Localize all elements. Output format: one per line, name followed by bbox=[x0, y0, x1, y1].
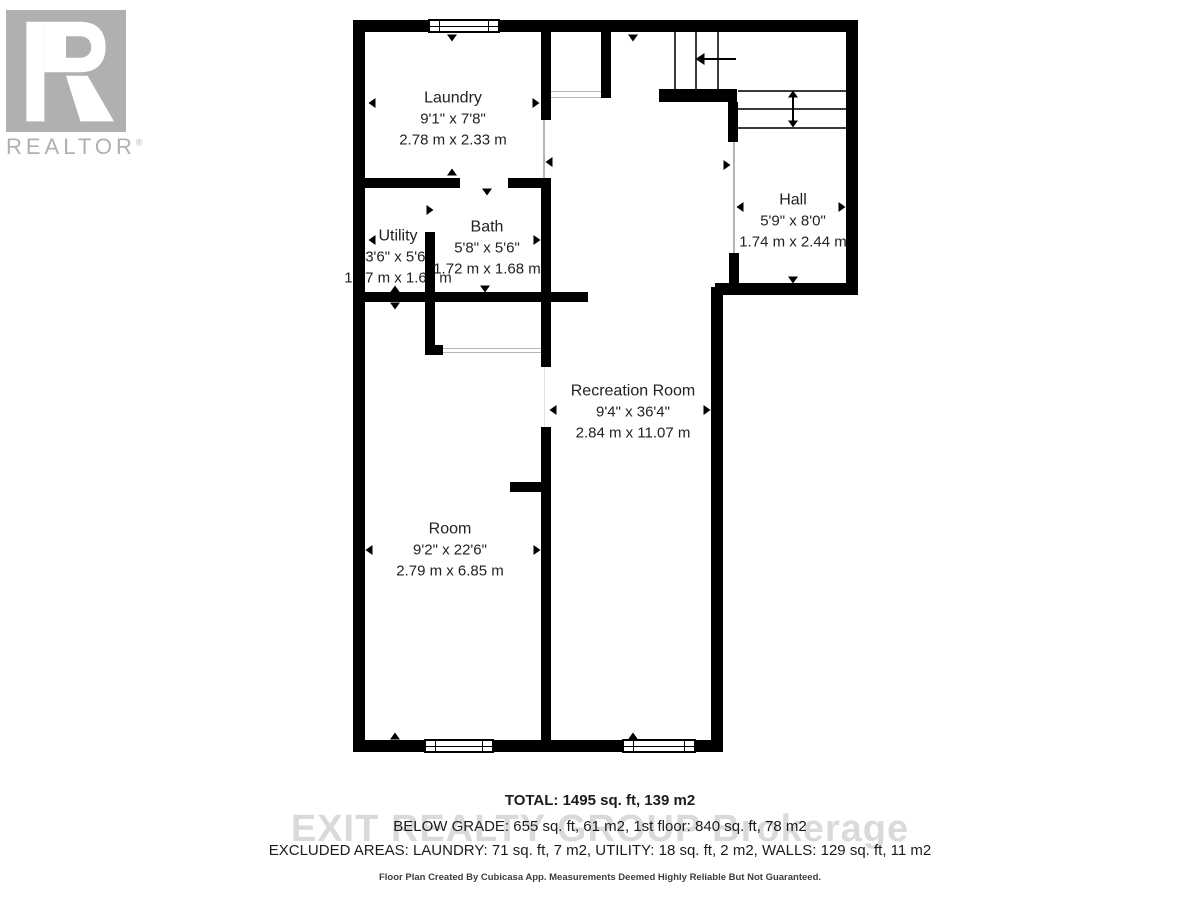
wall-stairs-side bbox=[728, 102, 738, 142]
stair-arrow-head-icon bbox=[788, 121, 798, 128]
window-bottom-left bbox=[424, 739, 494, 753]
measure-tick-icon bbox=[390, 303, 400, 310]
room-dimensions-imperial: 9'2" x 22'6" bbox=[396, 540, 504, 561]
room-name: Laundry bbox=[399, 88, 507, 109]
measure-tick-icon bbox=[550, 405, 557, 415]
room-dimensions-imperial: 5'8" x 5'6" bbox=[433, 238, 541, 259]
room-dimensions-metric: 2.84 m x 11.07 m bbox=[571, 423, 696, 444]
cubicasa-disclaimer: Floor Plan Created By Cubicasa App. Meas… bbox=[0, 872, 1200, 883]
measure-tick-icon bbox=[369, 235, 376, 245]
stair-arrow-head-icon bbox=[696, 53, 705, 65]
room-label-hall: Hall 5'9" x 8'0" 1.74 m x 2.44 m bbox=[739, 190, 847, 253]
wall-top-nook-right bbox=[601, 32, 611, 98]
window-bottom-right bbox=[622, 739, 696, 753]
room-name: Hall bbox=[739, 190, 847, 211]
room-label-bath: Bath 5'8" x 5'6" 1.72 m x 1.68 m bbox=[433, 217, 541, 280]
summary-excluded-areas: EXCLUDED AREAS: LAUNDRY: 71 sq. ft, 7 m2… bbox=[0, 842, 1200, 859]
stair-tread-line bbox=[674, 32, 676, 89]
window-cap bbox=[482, 741, 483, 751]
opening-nook-top-line bbox=[551, 91, 601, 92]
summary-total: TOTAL: 1495 sq. ft, 139 m2 bbox=[0, 792, 1200, 809]
measure-tick-icon bbox=[533, 98, 540, 108]
wall-alcove-foot bbox=[425, 345, 443, 355]
room-name: Recreation Room bbox=[571, 381, 696, 402]
room-dimensions-metric: 2.79 m x 6.85 m bbox=[396, 561, 504, 582]
measure-tick-icon bbox=[704, 405, 711, 415]
wall-hall-left-segment bbox=[729, 253, 739, 287]
realtor-wordmark: REALTOR® bbox=[0, 134, 140, 160]
registered-trademark-symbol: ® bbox=[136, 138, 143, 148]
opening-hall-left bbox=[733, 142, 735, 253]
window-cap bbox=[439, 21, 440, 31]
opening-laundry-door bbox=[543, 120, 545, 178]
opening-alcove-top-line bbox=[437, 348, 541, 349]
measure-tick-icon bbox=[534, 545, 541, 555]
wall-mid-horizontal bbox=[365, 292, 588, 302]
measure-tick-icon bbox=[534, 235, 541, 245]
measure-tick-icon bbox=[724, 160, 731, 170]
measure-tick-icon bbox=[369, 98, 376, 108]
wall-laundry-right bbox=[541, 32, 551, 120]
window-cap bbox=[488, 21, 489, 31]
summary-below-grade: BELOW GRADE: 655 sq. ft, 61 m2, 1st floo… bbox=[0, 818, 1200, 835]
measure-tick-icon bbox=[447, 169, 457, 176]
window-cap bbox=[633, 741, 634, 751]
wall-stairs-bottom bbox=[659, 89, 737, 102]
wall-left bbox=[353, 20, 365, 752]
measure-tick-icon bbox=[628, 35, 638, 42]
room-dimensions-imperial: 5'9" x 8'0" bbox=[739, 211, 847, 232]
measure-tick-icon bbox=[482, 189, 492, 196]
room-label-recreation-room: Recreation Room 9'4" x 36'4" 2.84 m x 11… bbox=[571, 381, 696, 444]
wall-laundry-bottom bbox=[365, 178, 460, 188]
realtor-logo-icon bbox=[6, 10, 126, 132]
room-dimensions-metric: 2.78 m x 2.33 m bbox=[399, 130, 507, 151]
room-name: Bath bbox=[433, 217, 541, 238]
measure-tick-icon bbox=[447, 35, 457, 42]
realtor-wordmark-text: REALTOR bbox=[6, 134, 136, 159]
measure-tick-icon bbox=[628, 733, 638, 740]
measure-tick-icon bbox=[427, 205, 434, 215]
measure-tick-icon bbox=[480, 286, 490, 293]
room-name: Room bbox=[396, 519, 504, 540]
room-dimensions-metric: 1.72 m x 1.68 m bbox=[433, 259, 541, 280]
room-label-laundry: Laundry 9'1" x 7'8" 2.78 m x 2.33 m bbox=[399, 88, 507, 151]
wall-recroom-right bbox=[711, 287, 723, 752]
measure-tick-icon bbox=[546, 157, 553, 167]
measure-tick-icon bbox=[737, 202, 744, 212]
stair-arrow-head-icon bbox=[788, 91, 798, 98]
stair-direction-arrow bbox=[702, 58, 736, 60]
room-dimensions-imperial: 9'4" x 36'4" bbox=[571, 402, 696, 423]
wall-room-stub bbox=[510, 482, 543, 492]
wall-room-divider bbox=[541, 427, 551, 752]
window-cap bbox=[435, 741, 436, 751]
realtor-r-icon bbox=[6, 10, 126, 132]
room-label-room: Room 9'2" x 22'6" 2.79 m x 6.85 m bbox=[396, 519, 504, 582]
window-top bbox=[428, 19, 500, 33]
floor-plan-page: REALTOR® bbox=[0, 0, 1200, 900]
wall-right-upper bbox=[846, 20, 858, 295]
measure-tick-icon bbox=[839, 202, 846, 212]
stair-direction-arrow bbox=[792, 95, 794, 121]
measure-tick-icon bbox=[366, 545, 373, 555]
opening-room-divider bbox=[544, 367, 545, 427]
stair-tread-line bbox=[717, 32, 719, 89]
measure-tick-icon bbox=[390, 733, 400, 740]
opening-alcove-bottom-line bbox=[437, 352, 541, 353]
wall-alcove-right bbox=[541, 302, 551, 367]
opening-nook-bottom-line bbox=[551, 97, 601, 98]
room-dimensions-imperial: 9'1" x 7'8" bbox=[399, 109, 507, 130]
measure-tick-icon bbox=[788, 277, 798, 284]
room-dimensions-metric: 1.74 m x 2.44 m bbox=[739, 232, 847, 253]
window-cap bbox=[684, 741, 685, 751]
wall-bath-right bbox=[541, 178, 551, 302]
measure-tick-icon bbox=[390, 286, 400, 293]
